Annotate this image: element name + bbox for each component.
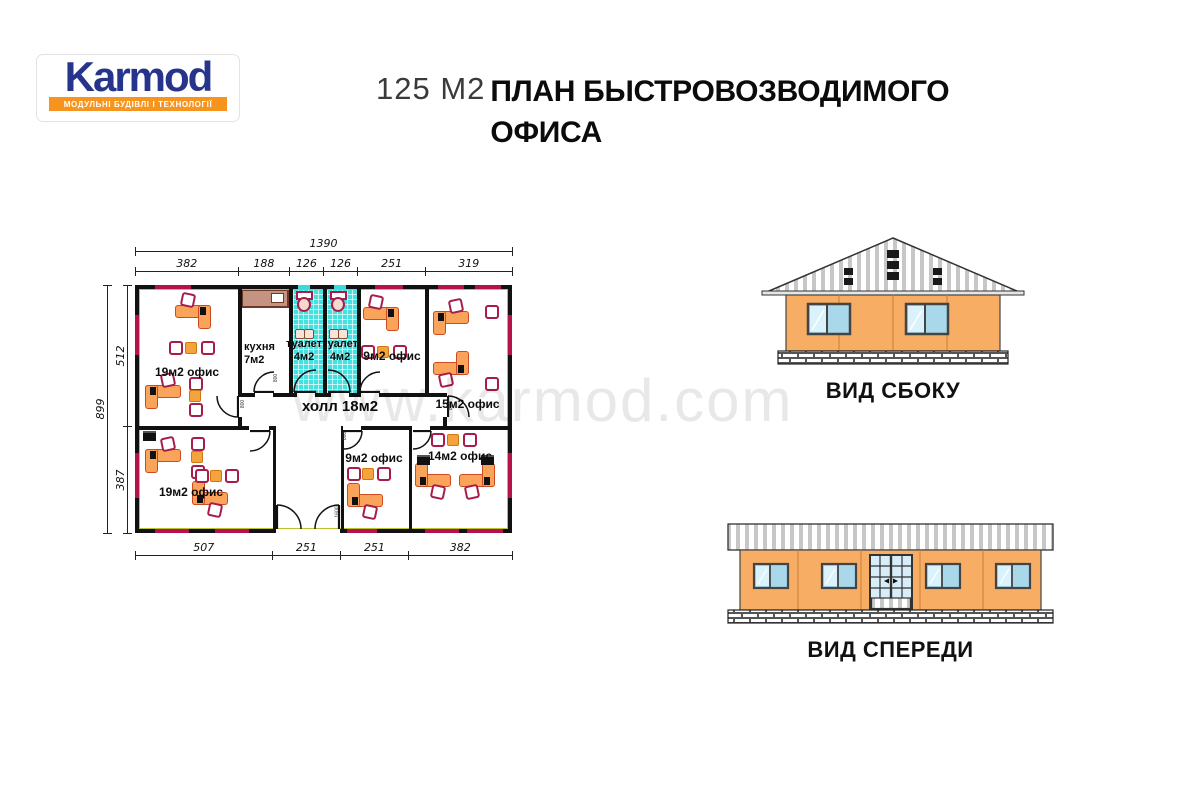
guest-chair (431, 433, 445, 447)
guest-chair (169, 341, 183, 355)
monitor (150, 387, 156, 395)
side-table (189, 390, 201, 402)
monitor (484, 477, 490, 485)
window-segment (425, 529, 459, 533)
door-size-label: 1600 (335, 506, 341, 517)
office-chair (448, 298, 465, 315)
guest-chair (463, 433, 477, 447)
toilet-fixture (296, 291, 309, 309)
room-label-office-bottom-middle: 9м2 офис (341, 451, 407, 465)
title-area-text: 125 М2 (376, 72, 485, 106)
front-elevation-drawing (718, 518, 1063, 633)
office-chair (430, 484, 447, 501)
dimension-value: 251 (272, 541, 340, 554)
toilet-fixture (330, 291, 343, 309)
guest-chair (347, 467, 361, 481)
side-table (210, 470, 222, 482)
dimension-value: 251 (340, 541, 408, 554)
window-segment (135, 453, 139, 498)
monitor (200, 307, 206, 315)
dimension-value: 188 (238, 257, 289, 270)
foundation (778, 351, 1008, 364)
foundation (728, 610, 1053, 623)
window-segment (155, 529, 189, 533)
door-arc (253, 371, 275, 393)
dimension-bar: 1390 (135, 236, 512, 252)
dimension-bar: 382188126126251319 (135, 256, 512, 272)
watermark-text: www.karmod.com (292, 366, 793, 435)
front-elevation-svg (718, 518, 1063, 633)
window-segment (347, 529, 377, 533)
room-label-toilet-right: туалет 4м2 (318, 338, 362, 364)
door-arc (249, 430, 271, 452)
guest-chair (189, 403, 203, 417)
window-segment (135, 315, 139, 355)
office-chair (160, 436, 177, 453)
window-segment (508, 315, 512, 355)
entrance-glass-door (870, 555, 912, 610)
page: Karmod МОДУЛЬНІ БУДІВЛІ І ТЕХНОЛОГІЇ 125… (0, 0, 1200, 800)
dimension-bar-vertical: 899 (97, 285, 113, 533)
window-segment (155, 285, 191, 289)
workstation (457, 463, 497, 499)
dimension-value: 512 (114, 336, 128, 376)
dimension-tick (512, 551, 513, 560)
door-size-label: 800 (273, 374, 279, 382)
title-line2: ОФИСА (490, 113, 949, 154)
office-chair (368, 294, 385, 311)
toilet-window-segment (298, 285, 310, 289)
side-table (185, 342, 197, 354)
window-segment (438, 285, 464, 289)
monitor (150, 451, 156, 459)
monitor (352, 497, 358, 505)
dimension-value: 382 (135, 257, 238, 270)
door-arc (216, 395, 239, 418)
window-segment (467, 529, 503, 533)
office-chair (362, 504, 379, 521)
window-segment (475, 285, 501, 289)
dimension-tick (103, 285, 112, 286)
toilet-right-name: туалет (318, 338, 362, 351)
dimension-bar-vertical: 512387 (117, 285, 133, 533)
workstation (173, 293, 213, 329)
roof-band (728, 524, 1053, 550)
dimension-value: 387 (114, 460, 128, 500)
dimension-tick (512, 267, 513, 276)
workstation (361, 295, 401, 331)
kitchen-sink (271, 293, 284, 303)
dimension-value: 507 (135, 541, 272, 554)
side-elevation-drawing (758, 228, 1028, 368)
dimension-tick (123, 426, 132, 427)
dimension-bar: 507251251382 (135, 540, 512, 556)
workstation (345, 483, 385, 519)
dimension-tick (123, 285, 132, 286)
dimension-value: 251 (358, 257, 426, 270)
toilet-bowl (331, 297, 345, 312)
room-label-office-top-left: 19м2 офис (139, 365, 235, 379)
room-label-office-bottom-right: 14м2 офис (411, 449, 509, 463)
dimension-value: 126 (324, 257, 358, 270)
dimension-value: 319 (426, 257, 512, 270)
monitor (388, 309, 394, 317)
toilet-right-area: 4м2 (318, 351, 362, 364)
side-table (362, 468, 374, 480)
monitor (420, 477, 426, 485)
dimension-line (135, 251, 512, 252)
office-chair (180, 292, 197, 309)
kitchen-counter (241, 289, 289, 308)
side-elevation-label: ВИД СБОКУ (758, 378, 1028, 404)
printer (143, 431, 156, 441)
dimension-tick (512, 247, 513, 256)
door-opening (255, 393, 273, 397)
roof-fascia (762, 291, 1024, 295)
room-label-office-top-middle: 9м2 офис (359, 349, 425, 363)
guest-chair (191, 437, 205, 451)
title-line1: ПЛАН БЫСТРОВОЗВОДИМОГО (490, 72, 949, 113)
guest-chair (377, 467, 391, 481)
workstation (143, 437, 183, 473)
workstation (413, 463, 453, 499)
toilet-bowl (297, 297, 311, 312)
dimension-tick (103, 533, 112, 534)
door-opening (249, 426, 269, 430)
logo-brand-text: Karmod (37, 56, 239, 97)
title-main-text: ПЛАН БЫСТРОВОЗВОДИМОГО ОФИСА (490, 72, 949, 153)
dimension-value: 1390 (135, 237, 512, 250)
dimension-tick (123, 533, 132, 534)
dimension-value: 126 (289, 257, 323, 270)
toilet-window-segment (334, 285, 346, 289)
logo-tagline: МОДУЛЬНІ БУДІВЛІ І ТЕХНОЛОГІЇ (49, 97, 227, 111)
office-chair (207, 502, 224, 519)
guest-chair (201, 341, 215, 355)
side-table (447, 434, 459, 446)
entrance-double-door (274, 503, 342, 530)
dimension-line (135, 555, 512, 556)
dimension-value: 899 (94, 389, 108, 429)
side-elevation-svg (758, 228, 1028, 368)
guest-chair (225, 469, 239, 483)
room-label-office-bottom-left: 19м2 офис (143, 485, 239, 499)
front-elevation-label: ВИД СПЕРЕДИ (718, 637, 1063, 663)
guest-chair (485, 305, 499, 319)
window-segment (215, 529, 249, 533)
guest-chair (195, 469, 209, 483)
workstation (431, 299, 471, 335)
monitor (438, 313, 444, 321)
side-table (191, 451, 203, 463)
dimension-value: 382 (408, 541, 512, 554)
window-segment (375, 285, 403, 289)
karmod-logo: Karmod МОДУЛЬНІ БУДІВЛІ І ТЕХНОЛОГІЇ (36, 54, 240, 122)
page-title: 125 М2 ПЛАН БЫСТРОВОЗВОДИМОГО ОФИСА (376, 72, 949, 153)
office-chair (464, 484, 481, 501)
